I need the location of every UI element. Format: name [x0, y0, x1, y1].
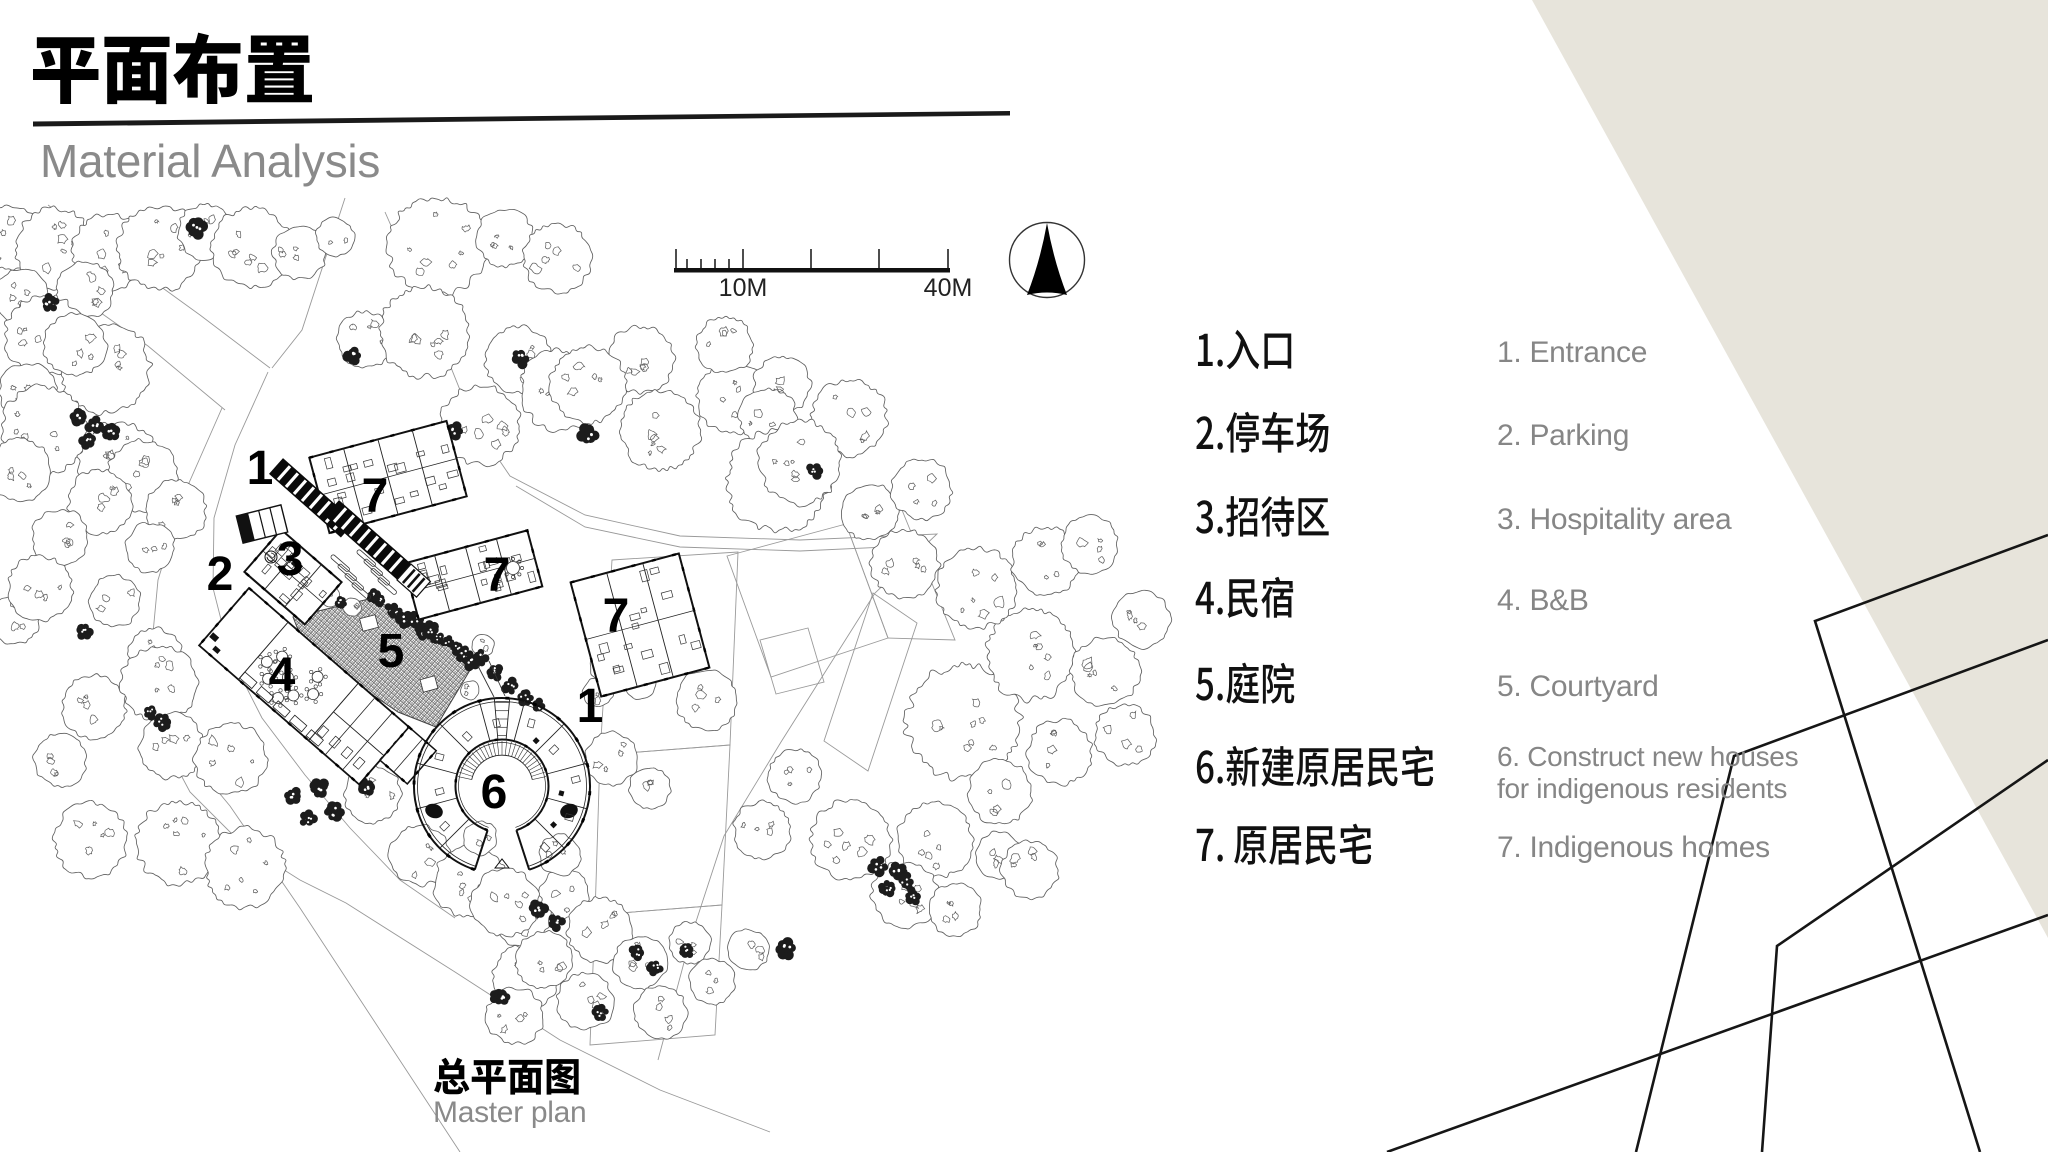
svg-text:5. Courtyard: 5. Courtyard [1497, 670, 1658, 703]
svg-text:Master plan: Master plan [433, 1096, 586, 1129]
svg-text:7: 7 [484, 549, 511, 602]
svg-text:3: 3 [277, 533, 304, 586]
svg-text:3. Hospitality area: 3. Hospitality area [1497, 503, 1732, 536]
svg-text:1: 1 [577, 680, 604, 733]
svg-text:10M: 10M [719, 274, 768, 302]
svg-text:7. Indigenous homes: 7. Indigenous homes [1497, 831, 1770, 864]
svg-text:40M: 40M [924, 274, 973, 302]
svg-text:7: 7 [362, 470, 389, 523]
svg-text:6: 6 [481, 766, 508, 819]
svg-text:2. Parking: 2. Parking [1497, 419, 1629, 452]
svg-text:4: 4 [269, 649, 296, 702]
svg-text:Material Analysis: Material Analysis [40, 135, 380, 187]
svg-text:1. Entrance: 1. Entrance [1497, 336, 1647, 369]
svg-text:4. B&B: 4. B&B [1497, 584, 1589, 617]
svg-text:6. Construct new houses: 6. Construct new houses [1497, 741, 1798, 772]
svg-text:7: 7 [603, 590, 630, 643]
svg-text:2: 2 [207, 548, 234, 601]
svg-text:1: 1 [247, 442, 274, 495]
svg-text:5: 5 [378, 625, 405, 678]
svg-text:for indigenous residents: for indigenous residents [1497, 773, 1787, 804]
